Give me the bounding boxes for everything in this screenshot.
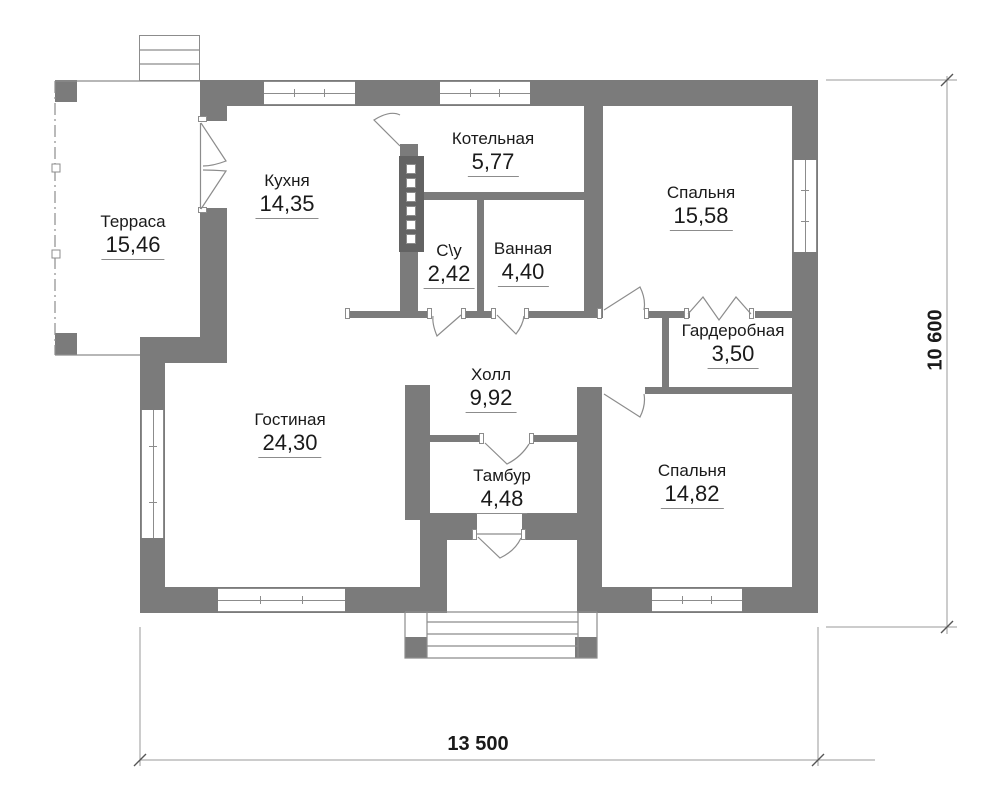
wall-wardrobe-left bbox=[662, 316, 669, 392]
terrace-column-marker bbox=[52, 164, 60, 172]
room-area: 3,50 bbox=[708, 341, 759, 369]
door-jamb bbox=[461, 308, 466, 319]
room-name: Тамбур bbox=[473, 465, 531, 486]
door-swing-entrance bbox=[477, 534, 522, 558]
room-label-hall: Холл 9,92 bbox=[466, 364, 517, 413]
room-label-wc: С\у 2,42 bbox=[424, 240, 475, 289]
door-swing-bath bbox=[497, 315, 524, 334]
wall-living-right bbox=[405, 385, 430, 520]
door-swing-tambour bbox=[485, 443, 529, 464]
door-jamb bbox=[198, 116, 207, 122]
room-name: Гостиная bbox=[254, 409, 325, 430]
room-name: Ванная bbox=[494, 238, 552, 259]
room-label-bedroom2: Спальня 14,82 bbox=[658, 460, 726, 509]
door-jamb bbox=[198, 207, 207, 213]
porch-steps bbox=[405, 612, 597, 658]
terrace-post-top bbox=[55, 80, 77, 102]
room-label-bedroom1: Спальня 15,58 bbox=[667, 182, 735, 231]
room-area: 14,35 bbox=[255, 191, 318, 219]
room-label-terrace: Терраса 15,46 bbox=[100, 211, 165, 260]
door-jamb bbox=[427, 308, 432, 319]
door-jamb bbox=[524, 308, 529, 319]
zigzag-opening-wardrobe bbox=[688, 297, 751, 320]
room-name: Котельная bbox=[452, 128, 534, 149]
wall-bedroom1-left bbox=[584, 106, 603, 318]
door-jamb bbox=[479, 433, 484, 444]
room-name: Кухня bbox=[255, 170, 318, 191]
room-area: 14,82 bbox=[660, 481, 723, 509]
room-area: 4,40 bbox=[498, 259, 549, 287]
wall-entry-b bbox=[522, 513, 602, 540]
room-area: 15,58 bbox=[669, 203, 732, 231]
wall-hall-top-e bbox=[755, 311, 792, 318]
room-name: Спальня bbox=[667, 182, 735, 203]
wall-boiler-bottom bbox=[418, 192, 603, 200]
wall-wc-bath bbox=[477, 200, 484, 311]
room-name: Гардеробная bbox=[682, 320, 785, 341]
door-jamb bbox=[472, 529, 477, 540]
wall-bedroom2-left bbox=[577, 387, 602, 613]
room-area: 5,77 bbox=[468, 149, 519, 177]
window-kitchen bbox=[264, 81, 355, 105]
door-swing-terrace bbox=[201, 123, 227, 209]
door-swing-wc bbox=[433, 315, 461, 336]
floor-plan: Терраса 15,46 Кухня 14,35 Котельная 5,77… bbox=[0, 0, 1000, 802]
window-boiler bbox=[440, 81, 530, 105]
room-label-boiler: Котельная 5,77 bbox=[452, 128, 534, 177]
wall-terrace-stub-top bbox=[200, 80, 227, 121]
room-name: Холл bbox=[466, 364, 517, 385]
wall-entry-a bbox=[420, 513, 477, 540]
porch-post-right bbox=[575, 637, 597, 658]
room-area: 24,30 bbox=[258, 430, 321, 458]
room-label-vestibule: Тамбур 4,48 bbox=[473, 465, 531, 514]
door-jamb bbox=[749, 308, 754, 319]
room-area: 9,92 bbox=[466, 385, 517, 413]
terrace-column-marker bbox=[52, 250, 60, 258]
wall-hall-tambour-a bbox=[425, 435, 483, 442]
door-swing-bedroom1 bbox=[604, 287, 645, 310]
wall-hall-top-a bbox=[348, 311, 432, 318]
dimension-width-label: 13 500 bbox=[447, 733, 508, 756]
door-jamb bbox=[521, 529, 526, 540]
door-jamb bbox=[491, 308, 496, 319]
door-jamb bbox=[597, 308, 602, 319]
door-jamb bbox=[684, 308, 689, 319]
window-bedroom2 bbox=[652, 588, 742, 612]
room-area: 4,48 bbox=[477, 486, 528, 514]
door-jamb bbox=[529, 433, 534, 444]
room-label-wardrobe: Гардеробная 3,50 bbox=[682, 320, 785, 369]
room-name: С\у bbox=[424, 240, 475, 261]
flue-shaft bbox=[399, 156, 424, 252]
room-name: Терраса bbox=[100, 211, 165, 232]
door-jamb bbox=[644, 308, 649, 319]
wall-hall-top-c bbox=[525, 311, 602, 318]
room-label-kitchen: Кухня 14,35 bbox=[255, 170, 318, 219]
room-label-bath: Ванная 4,40 bbox=[494, 238, 552, 287]
room-area: 15,46 bbox=[101, 232, 164, 260]
door-jamb bbox=[345, 308, 350, 319]
window-bedroom1 bbox=[793, 160, 817, 252]
terrace-post-bottom bbox=[55, 333, 77, 355]
window-living-left bbox=[141, 410, 164, 538]
chimney bbox=[139, 36, 200, 81]
wall-terrace-stub-bottom bbox=[200, 208, 227, 363]
room-name: Спальня bbox=[658, 460, 726, 481]
room-label-living: Гостиная 24,30 bbox=[254, 409, 325, 458]
window-living bbox=[218, 588, 345, 612]
door-swing-bedroom2 bbox=[604, 394, 645, 417]
wall-hall-tambour-b bbox=[530, 435, 577, 442]
room-area: 2,42 bbox=[424, 261, 475, 289]
wall-wardrobe-bottom bbox=[645, 387, 792, 394]
door-swing-boiler bbox=[374, 113, 400, 146]
porch-post-left bbox=[405, 637, 427, 658]
dimension-height-label: 10 600 bbox=[925, 309, 948, 370]
